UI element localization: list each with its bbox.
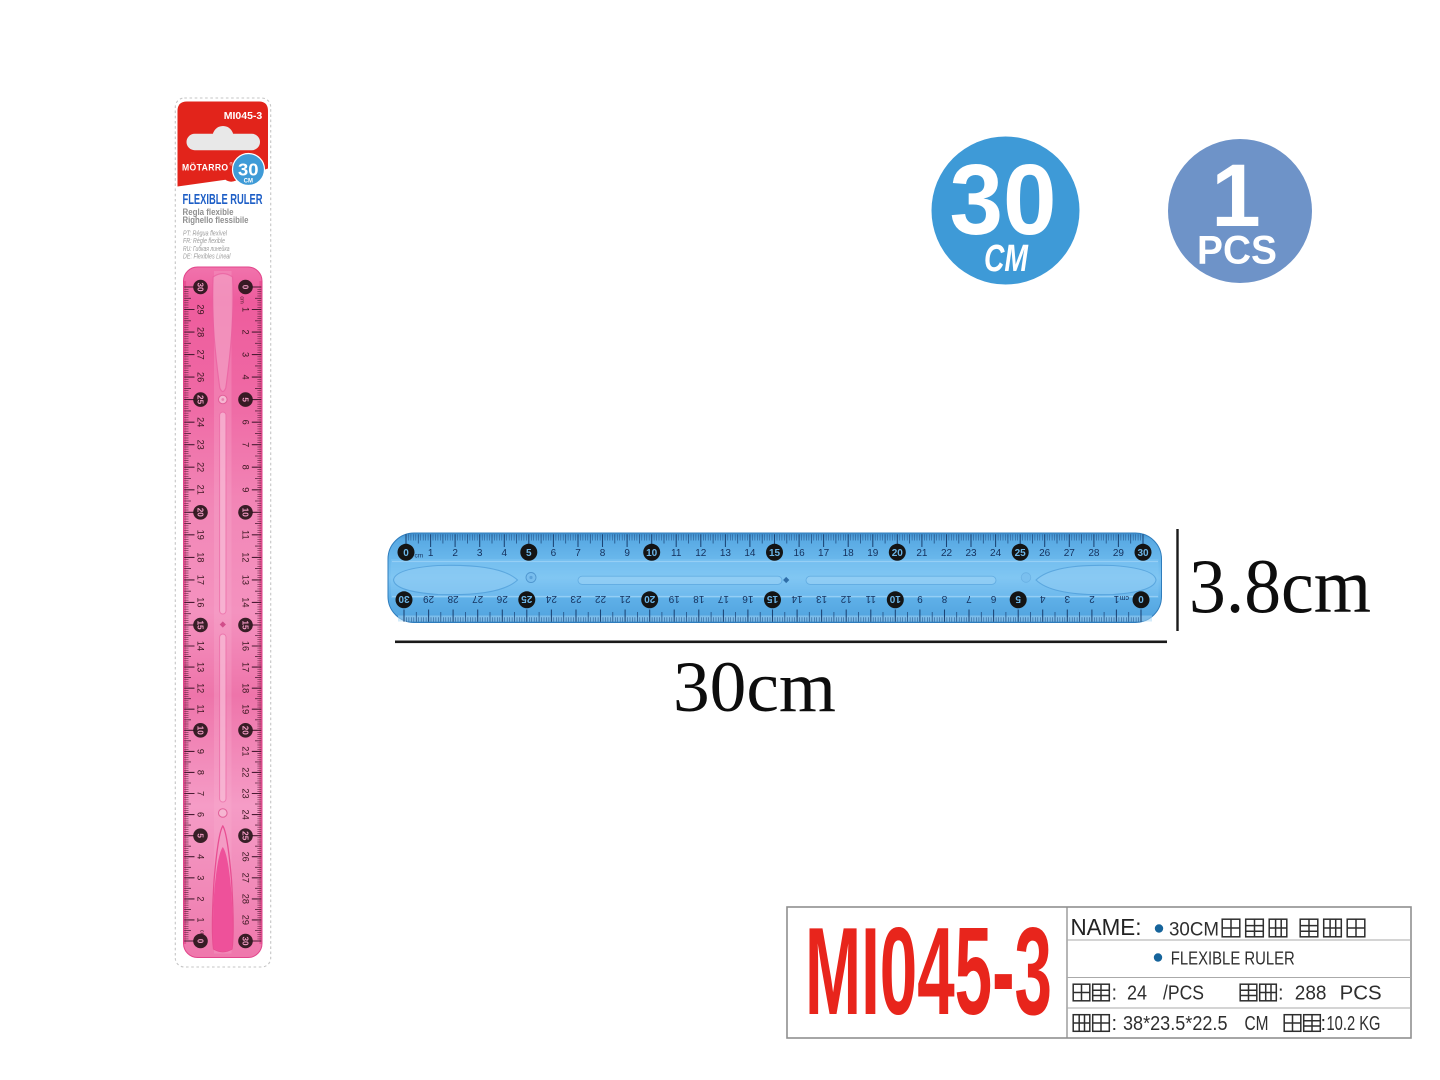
svg-text:17: 17 <box>818 548 830 559</box>
svg-text:0: 0 <box>1138 593 1144 604</box>
svg-text:23: 23 <box>196 440 206 450</box>
svg-text:10: 10 <box>241 508 250 518</box>
svg-text:4: 4 <box>502 548 508 559</box>
svg-text:17: 17 <box>241 662 251 672</box>
svg-text:12: 12 <box>695 548 707 559</box>
svg-text:8: 8 <box>941 593 947 604</box>
svg-text:18: 18 <box>693 593 705 604</box>
svg-text:29: 29 <box>423 593 435 604</box>
svg-text:/PCS: /PCS <box>1163 983 1204 1005</box>
svg-text:6: 6 <box>196 812 206 817</box>
svg-text:30CM: 30CM <box>1169 920 1219 941</box>
svg-text:288: 288 <box>1295 983 1327 1005</box>
svg-text:15: 15 <box>196 620 205 630</box>
svg-text:1: 1 <box>1113 593 1119 604</box>
svg-text:16: 16 <box>794 548 806 559</box>
svg-text:7: 7 <box>241 442 251 447</box>
svg-text:21: 21 <box>916 548 928 559</box>
svg-text:20: 20 <box>892 548 904 559</box>
svg-text:26: 26 <box>241 852 251 862</box>
svg-text:10.2 KG: 10.2 KG <box>1327 1013 1381 1035</box>
svg-text:11: 11 <box>196 704 206 714</box>
svg-text:10: 10 <box>889 593 901 604</box>
svg-text:19: 19 <box>668 593 680 604</box>
svg-text:22: 22 <box>595 593 607 604</box>
svg-text:FLEXIBLE RULER: FLEXIBLE RULER <box>183 192 263 208</box>
svg-text:4: 4 <box>196 854 206 859</box>
svg-text:RU: Гибкая линейка: RU: Гибкая линейка <box>183 245 230 253</box>
svg-text:5: 5 <box>526 548 532 559</box>
svg-text:14: 14 <box>241 597 251 607</box>
svg-text:15: 15 <box>767 593 779 604</box>
svg-text:11: 11 <box>671 548 682 559</box>
svg-text:0: 0 <box>403 548 409 559</box>
svg-text:26: 26 <box>1039 548 1051 559</box>
svg-text::: : <box>1321 1013 1327 1035</box>
svg-text:7: 7 <box>196 791 206 796</box>
svg-text:18: 18 <box>196 552 206 562</box>
svg-text:FLEXIBLE RULER: FLEXIBLE RULER <box>1171 949 1295 969</box>
svg-text:PCS: PCS <box>1340 983 1382 1005</box>
svg-text:3: 3 <box>477 548 483 559</box>
svg-text:27: 27 <box>1064 548 1076 559</box>
svg-text:8: 8 <box>241 465 251 470</box>
svg-text:7: 7 <box>966 593 972 604</box>
svg-text:2: 2 <box>452 548 458 559</box>
svg-text:20: 20 <box>644 593 656 604</box>
svg-text:24: 24 <box>241 809 251 819</box>
svg-text:20: 20 <box>196 508 205 518</box>
svg-text:CM: CM <box>244 179 253 185</box>
svg-text:5: 5 <box>196 833 205 838</box>
svg-text:2: 2 <box>1089 593 1095 604</box>
svg-text:cm: cm <box>1120 594 1130 601</box>
svg-text:NAME:: NAME: <box>1071 914 1142 940</box>
svg-text:13: 13 <box>816 593 828 604</box>
svg-text:MI045-3: MI045-3 <box>805 903 1052 1041</box>
svg-text:18: 18 <box>241 683 251 693</box>
svg-text:19: 19 <box>867 548 879 559</box>
svg-text:26: 26 <box>196 372 206 382</box>
svg-text:22: 22 <box>241 767 251 777</box>
svg-text:1: 1 <box>241 307 251 312</box>
svg-text:12: 12 <box>840 593 852 604</box>
svg-text::: : <box>1278 983 1284 1005</box>
svg-text:14: 14 <box>744 548 756 559</box>
svg-text:27: 27 <box>241 873 251 883</box>
svg-text:3.8cm: 3.8cm <box>1189 543 1371 629</box>
svg-text:5: 5 <box>1015 593 1021 604</box>
svg-text:0: 0 <box>196 939 205 944</box>
svg-text:30: 30 <box>241 936 250 946</box>
svg-text:9: 9 <box>917 593 923 604</box>
svg-text:15: 15 <box>241 620 250 630</box>
svg-text:19: 19 <box>196 530 206 540</box>
svg-text:10: 10 <box>196 726 205 736</box>
svg-text:21: 21 <box>196 485 206 495</box>
svg-text:30: 30 <box>1137 548 1149 559</box>
svg-text:2: 2 <box>196 896 206 901</box>
svg-text:11: 11 <box>241 530 251 540</box>
svg-text:23: 23 <box>965 548 977 559</box>
svg-text:FR: Règle flexible: FR: Règle flexible <box>183 238 225 245</box>
svg-text:5: 5 <box>241 397 250 402</box>
svg-text:cm: cm <box>415 553 424 560</box>
svg-text:9: 9 <box>196 749 206 754</box>
svg-text:28: 28 <box>447 593 459 604</box>
svg-text:28: 28 <box>196 327 206 337</box>
svg-text:CM: CM <box>984 238 1029 280</box>
svg-text:13: 13 <box>720 548 732 559</box>
svg-text:9: 9 <box>241 487 251 492</box>
svg-text:27: 27 <box>196 349 206 359</box>
svg-text:20: 20 <box>241 726 250 736</box>
svg-text:11: 11 <box>865 593 876 604</box>
svg-text:9: 9 <box>624 548 630 559</box>
svg-text:19: 19 <box>241 704 251 714</box>
svg-text:Righello flessibile: Righello flessibile <box>183 215 249 226</box>
svg-text:21: 21 <box>241 746 251 756</box>
svg-text:38*23.5*22.5: 38*23.5*22.5 <box>1123 1013 1228 1035</box>
svg-text:26: 26 <box>496 593 508 604</box>
svg-text:30: 30 <box>196 282 205 292</box>
svg-text:30: 30 <box>238 160 259 180</box>
svg-text:27: 27 <box>472 593 484 604</box>
svg-text::: : <box>1112 983 1118 1005</box>
svg-text:3: 3 <box>1064 593 1070 604</box>
svg-text:25: 25 <box>521 593 533 604</box>
svg-text:6: 6 <box>990 593 996 604</box>
svg-text:4: 4 <box>1039 593 1045 604</box>
svg-text:2: 2 <box>241 330 251 335</box>
svg-text:25: 25 <box>241 831 250 841</box>
svg-text:25: 25 <box>196 395 205 405</box>
svg-text:29: 29 <box>1113 548 1125 559</box>
svg-text:13: 13 <box>196 662 206 672</box>
svg-text:28: 28 <box>1088 548 1100 559</box>
svg-text:30cm: 30cm <box>673 647 836 727</box>
svg-text:24: 24 <box>1127 983 1147 1005</box>
svg-text:29: 29 <box>241 915 251 925</box>
svg-text:21: 21 <box>619 593 631 604</box>
svg-text:12: 12 <box>241 552 251 562</box>
svg-text:24: 24 <box>196 417 206 427</box>
svg-text:23: 23 <box>570 593 582 604</box>
svg-text:1: 1 <box>428 548 434 559</box>
svg-text:3: 3 <box>196 875 206 880</box>
svg-text:24: 24 <box>990 548 1002 559</box>
svg-text:22: 22 <box>196 462 206 472</box>
svg-text:PCS: PCS <box>1197 229 1277 273</box>
svg-text:8: 8 <box>600 548 606 559</box>
svg-text:1: 1 <box>196 917 206 922</box>
svg-text:13: 13 <box>241 575 251 585</box>
svg-text:16: 16 <box>196 597 206 607</box>
svg-text:6: 6 <box>551 548 557 559</box>
svg-text:28: 28 <box>241 894 251 904</box>
svg-text:MI045-3: MI045-3 <box>224 110 263 122</box>
svg-text:23: 23 <box>241 788 251 798</box>
svg-text::: : <box>1112 1013 1118 1035</box>
svg-text:16: 16 <box>742 593 754 604</box>
svg-text:0: 0 <box>241 285 250 290</box>
svg-text:24: 24 <box>545 593 557 604</box>
svg-text:cm: cm <box>199 930 205 938</box>
svg-text:7: 7 <box>575 548 581 559</box>
svg-text:15: 15 <box>769 548 781 559</box>
svg-text:30: 30 <box>398 593 410 604</box>
svg-text:8: 8 <box>196 770 206 775</box>
svg-text:3: 3 <box>241 352 251 357</box>
svg-text:6: 6 <box>241 420 251 425</box>
svg-text:18: 18 <box>843 548 855 559</box>
svg-text:17: 17 <box>196 575 206 585</box>
svg-text:14: 14 <box>791 593 803 604</box>
svg-text:PT: Régua flexível: PT: Régua flexível <box>183 231 227 238</box>
svg-text:16: 16 <box>241 641 251 651</box>
svg-text:12: 12 <box>196 683 206 693</box>
svg-text:25: 25 <box>1015 548 1027 559</box>
svg-text:14: 14 <box>196 641 206 651</box>
svg-text:CM: CM <box>1245 1013 1269 1035</box>
svg-text:MÖTARRO: MÖTARRO <box>182 163 229 173</box>
svg-text:29: 29 <box>196 304 206 314</box>
svg-text:4: 4 <box>241 375 251 380</box>
svg-text:DE: Flexibles Lineal: DE: Flexibles Lineal <box>183 254 231 261</box>
svg-text:22: 22 <box>941 548 953 559</box>
svg-text:17: 17 <box>717 593 729 604</box>
svg-text:10: 10 <box>646 548 658 559</box>
svg-text:cm: cm <box>239 296 245 304</box>
